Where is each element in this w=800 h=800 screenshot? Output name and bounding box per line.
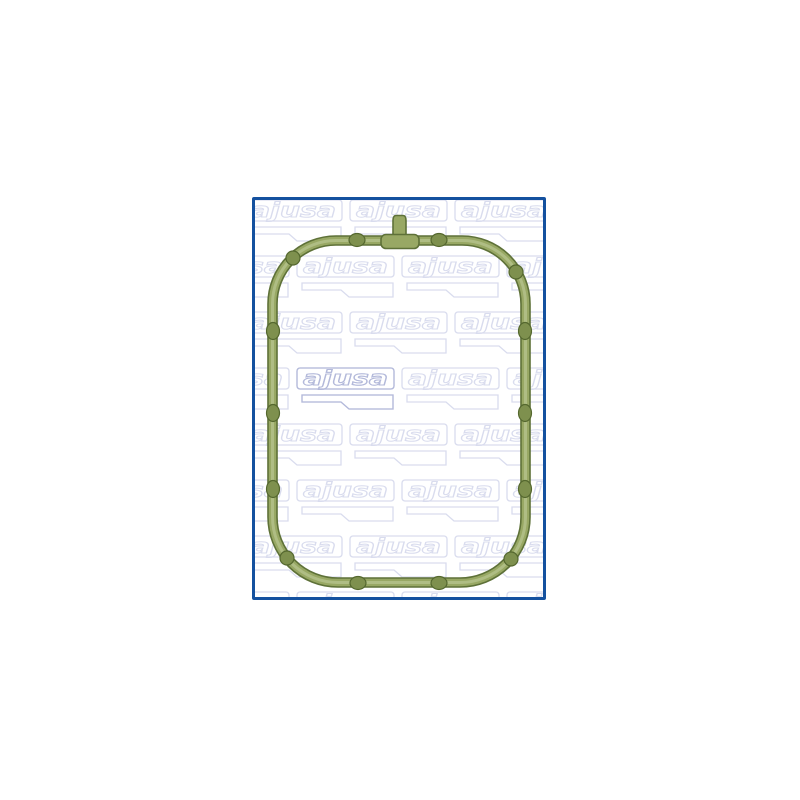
gasket-bump (519, 481, 532, 498)
gasket-bump (267, 405, 280, 422)
watermark-tile (297, 478, 394, 521)
watermark-tile (255, 200, 342, 241)
watermark-tile (402, 254, 499, 297)
watermark-tile (350, 534, 447, 577)
gasket-bump (431, 577, 447, 590)
gasket-bump (519, 405, 532, 422)
gasket-bump (286, 251, 300, 265)
watermark-tile (402, 478, 499, 521)
product-image-frame: ajusa (252, 197, 546, 600)
gasket-stub-collar (381, 235, 419, 249)
watermark-tile (507, 590, 543, 597)
watermark-tile (297, 590, 394, 597)
watermark-tile (455, 200, 543, 241)
watermark-tile (255, 590, 289, 597)
watermark-tile (402, 366, 499, 409)
watermark-tile-emphasized (297, 366, 394, 409)
gasket-bump (349, 234, 365, 247)
gasket-bump (350, 577, 366, 590)
watermark-tile (350, 422, 447, 465)
watermark-tile (402, 590, 499, 597)
gasket-highlight (273, 241, 526, 583)
gasket-bump (504, 552, 518, 566)
page: { "page": { "background": "#ffffff" }, "… (0, 0, 800, 800)
gasket-bump (519, 323, 532, 340)
watermark-tile (297, 254, 394, 297)
gasket-bump (267, 481, 280, 498)
gasket-bump (280, 551, 294, 565)
gasket-bump (431, 234, 447, 247)
watermark-tile (350, 310, 447, 353)
gasket-bump (509, 265, 523, 279)
gasket-bump (267, 323, 280, 340)
gasket-product-image: ajusa (255, 200, 543, 597)
